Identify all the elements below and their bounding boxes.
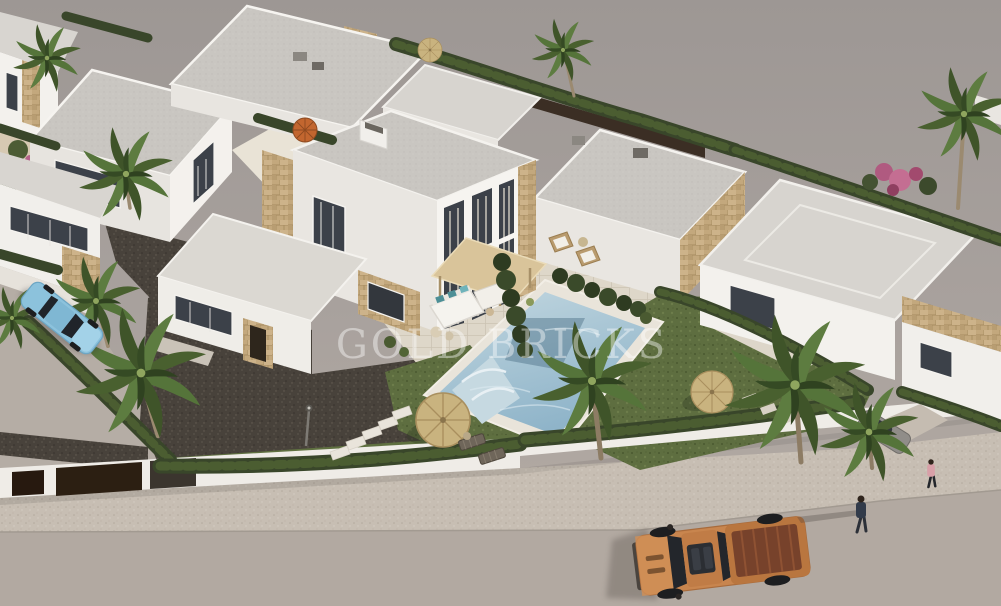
watermark: GOLD BRICKS: [336, 322, 668, 368]
parasol-straw: [416, 393, 470, 447]
aerial-render: GOLD BRICKS: [0, 0, 1001, 606]
window: [6, 72, 18, 112]
render-canvas: GOLD BRICKS: [0, 0, 1001, 606]
pool-table: [463, 432, 471, 440]
ac-unit: [293, 52, 307, 61]
ac-unit: [312, 62, 324, 70]
parasol-orange: [293, 118, 317, 142]
person-body: [927, 464, 935, 477]
person-body: [856, 502, 866, 518]
ac-unit: [572, 136, 585, 145]
ac-unit: [633, 148, 648, 158]
gate-1: [12, 470, 44, 496]
entry-door: [250, 325, 266, 362]
person-head: [858, 496, 865, 503]
parasol-straw: [691, 371, 733, 413]
person-head: [928, 459, 933, 464]
gate-2: [56, 462, 142, 496]
side-table: [578, 237, 588, 247]
parasol-straw-small: [418, 38, 442, 62]
